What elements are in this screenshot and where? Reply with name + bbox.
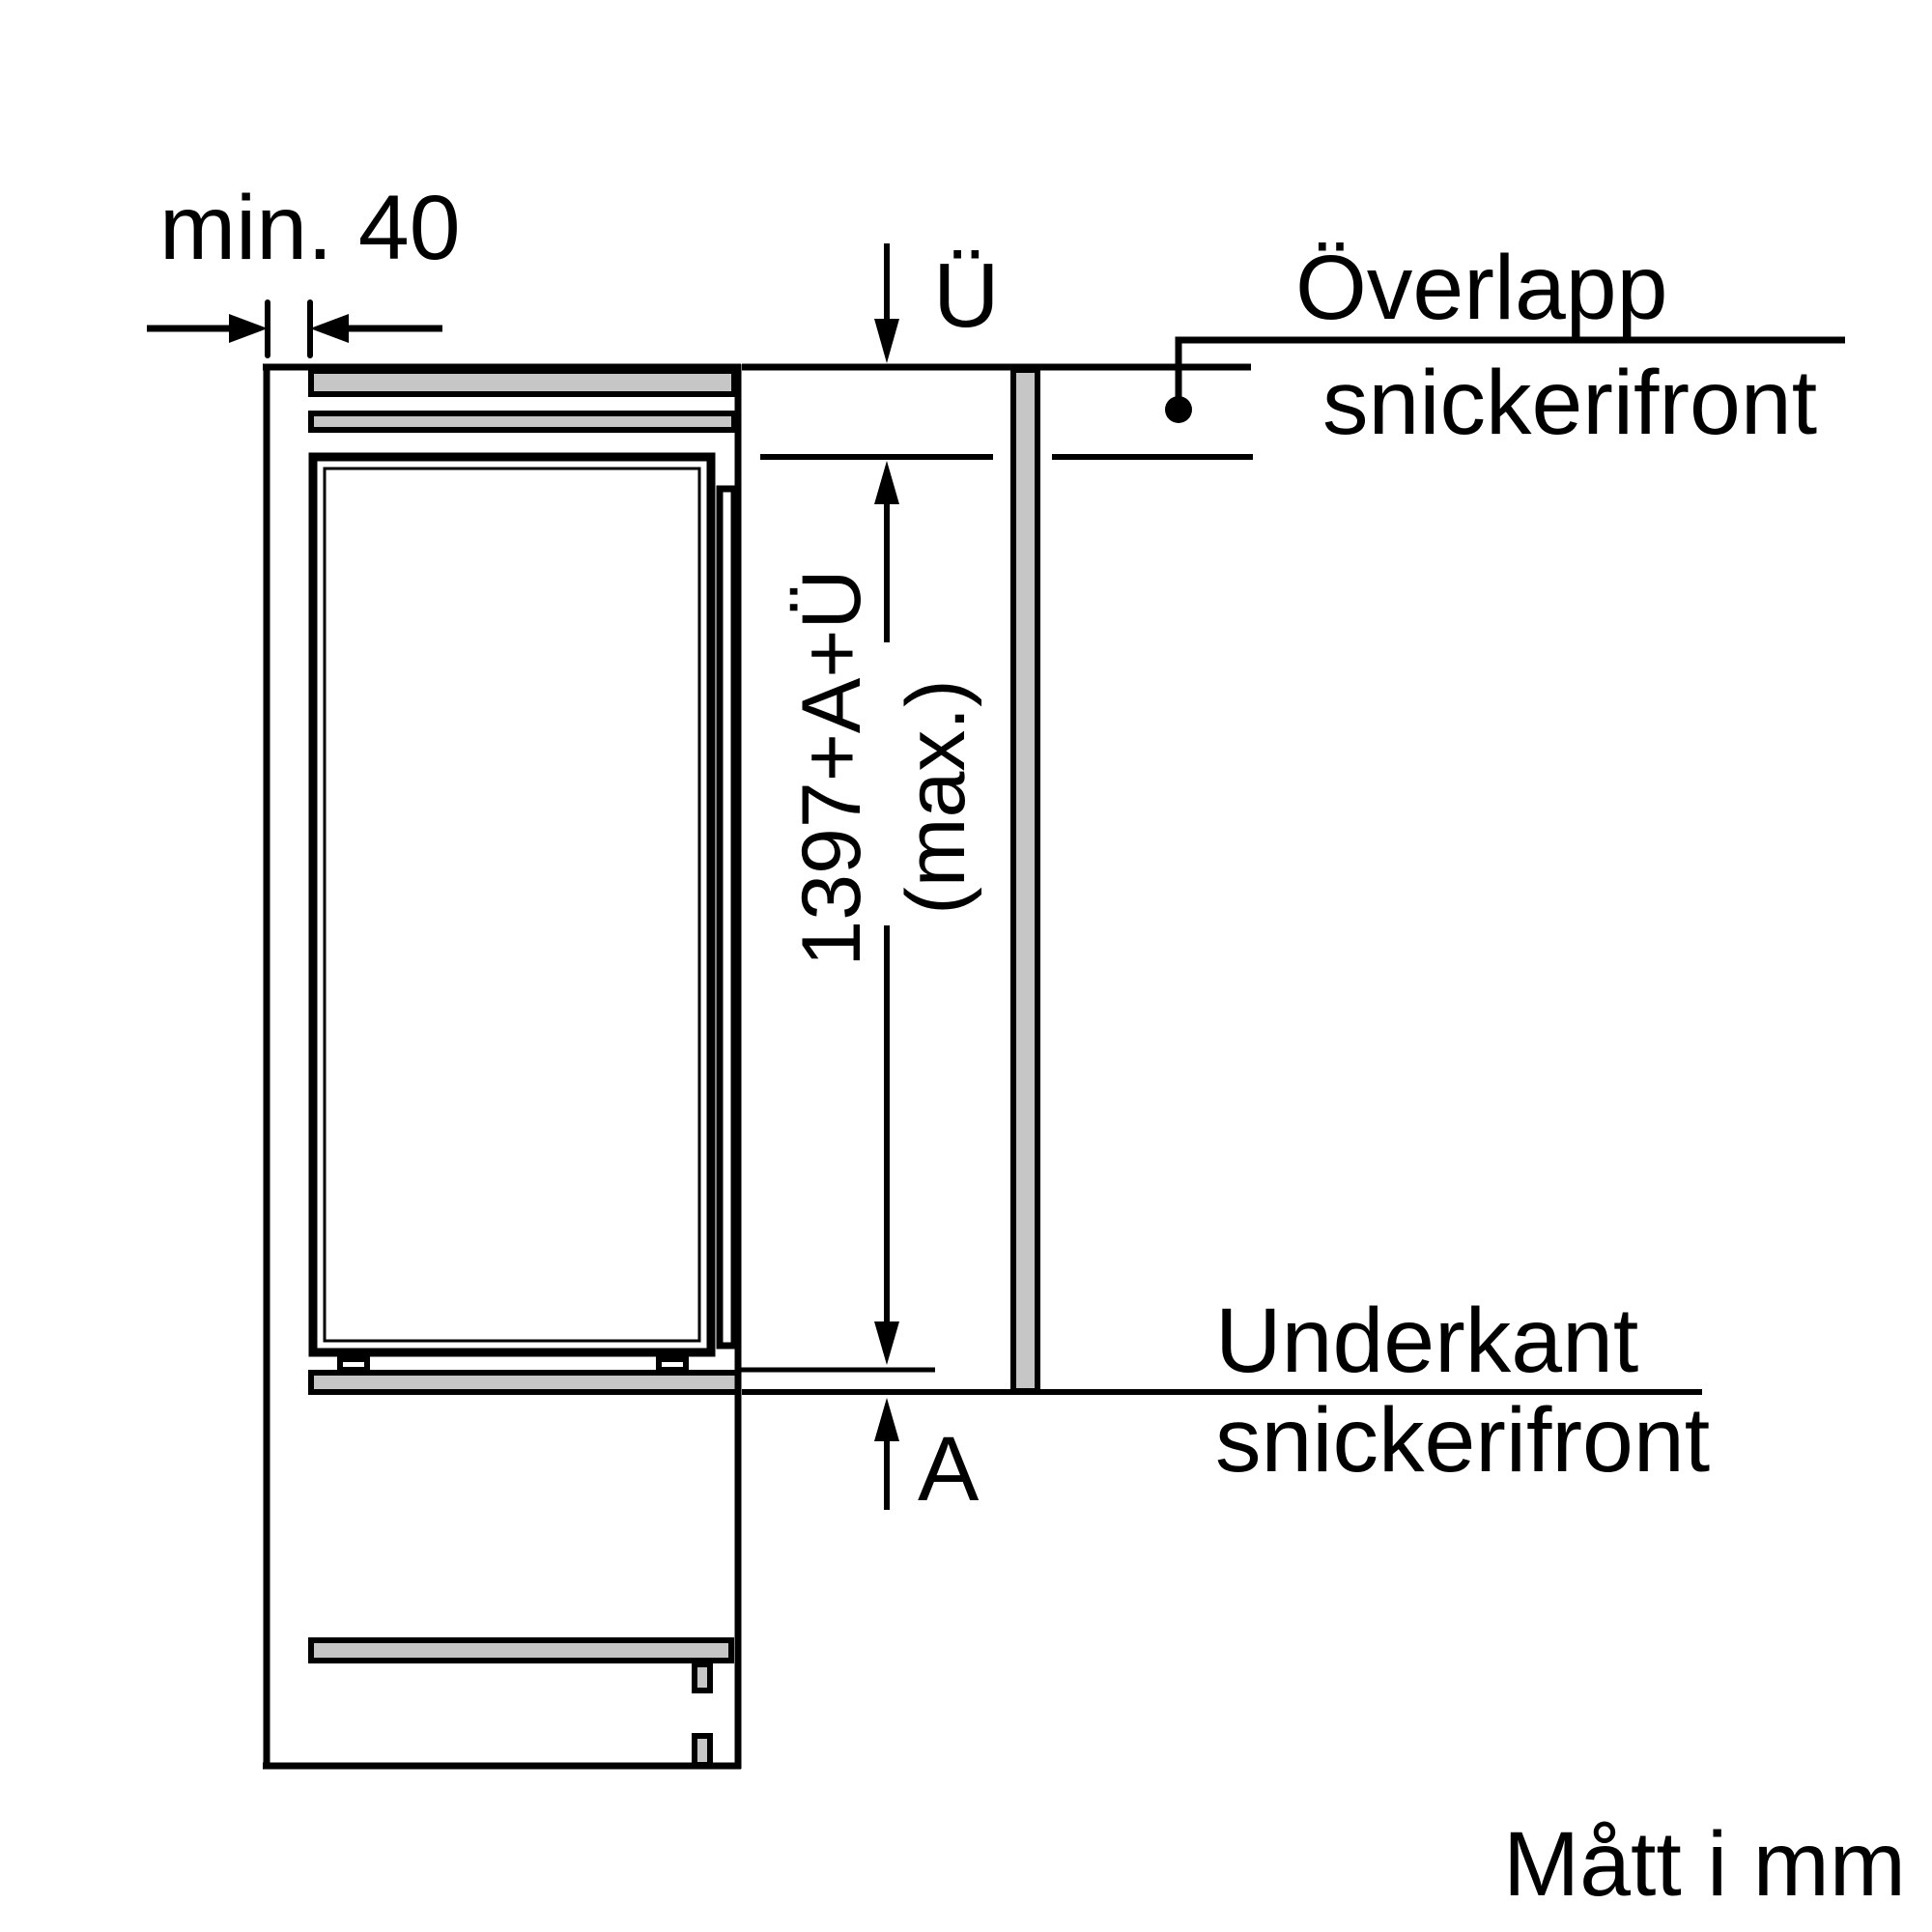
appliance-foot-left [340,1359,367,1370]
dimension-min40: min. 40 [147,177,461,355]
min40-arrowhead-right [310,314,349,343]
overlap-letter-label: Ü [933,244,1000,347]
mounting-block-lower [695,1736,710,1765]
cabinet-vent-panel [311,413,734,430]
appliance-body [313,457,711,1352]
furniture-front-panel [1013,370,1037,1391]
appliance-foot-right [659,1359,686,1370]
dimension-overlap: Ü [874,243,1000,363]
dimension-height: 1397+A+Ü (max.) [785,461,982,1365]
overlap-leader-dot [1165,396,1192,423]
callout-underkant: Underkant snickerifront [1215,1290,1710,1492]
mounting-block-upper [695,1664,710,1690]
underkant-label-line1: Underkant [1215,1290,1638,1392]
niche-floor-panel [311,1373,738,1392]
height-max-label: (max.) [890,679,982,915]
overlap-label-line1: Överlapp [1295,237,1667,339]
diagram-canvas: min. 40 Ü 1397+A+Ü (max.) A Överlapp sni… [0,0,1932,1932]
dimension-a: A [874,1398,980,1520]
overlap-arrowhead-down [874,319,899,363]
cabinet-top-panel [311,371,734,394]
appliance-door [720,489,734,1346]
underkant-label-line2: snickerifront [1215,1389,1710,1492]
plinth-panel [311,1640,731,1661]
min40-arrowhead-left [229,314,268,343]
reference-lines [737,367,1702,1392]
a-letter-label: A [918,1418,980,1520]
cabinet-section [263,364,741,1769]
min40-label: min. 40 [159,177,461,279]
callout-overlap: Överlapp snickerifront [1165,237,1845,454]
height-formula-label: 1397+A+Ü [785,569,878,966]
installation-diagram: min. 40 Ü 1397+A+Ü (max.) A Överlapp sni… [0,0,1932,1932]
units-note: Mått i mm [1503,1813,1906,1916]
overlap-label-line2: snickerifront [1322,352,1817,454]
height-arrowhead-down [874,1321,899,1365]
